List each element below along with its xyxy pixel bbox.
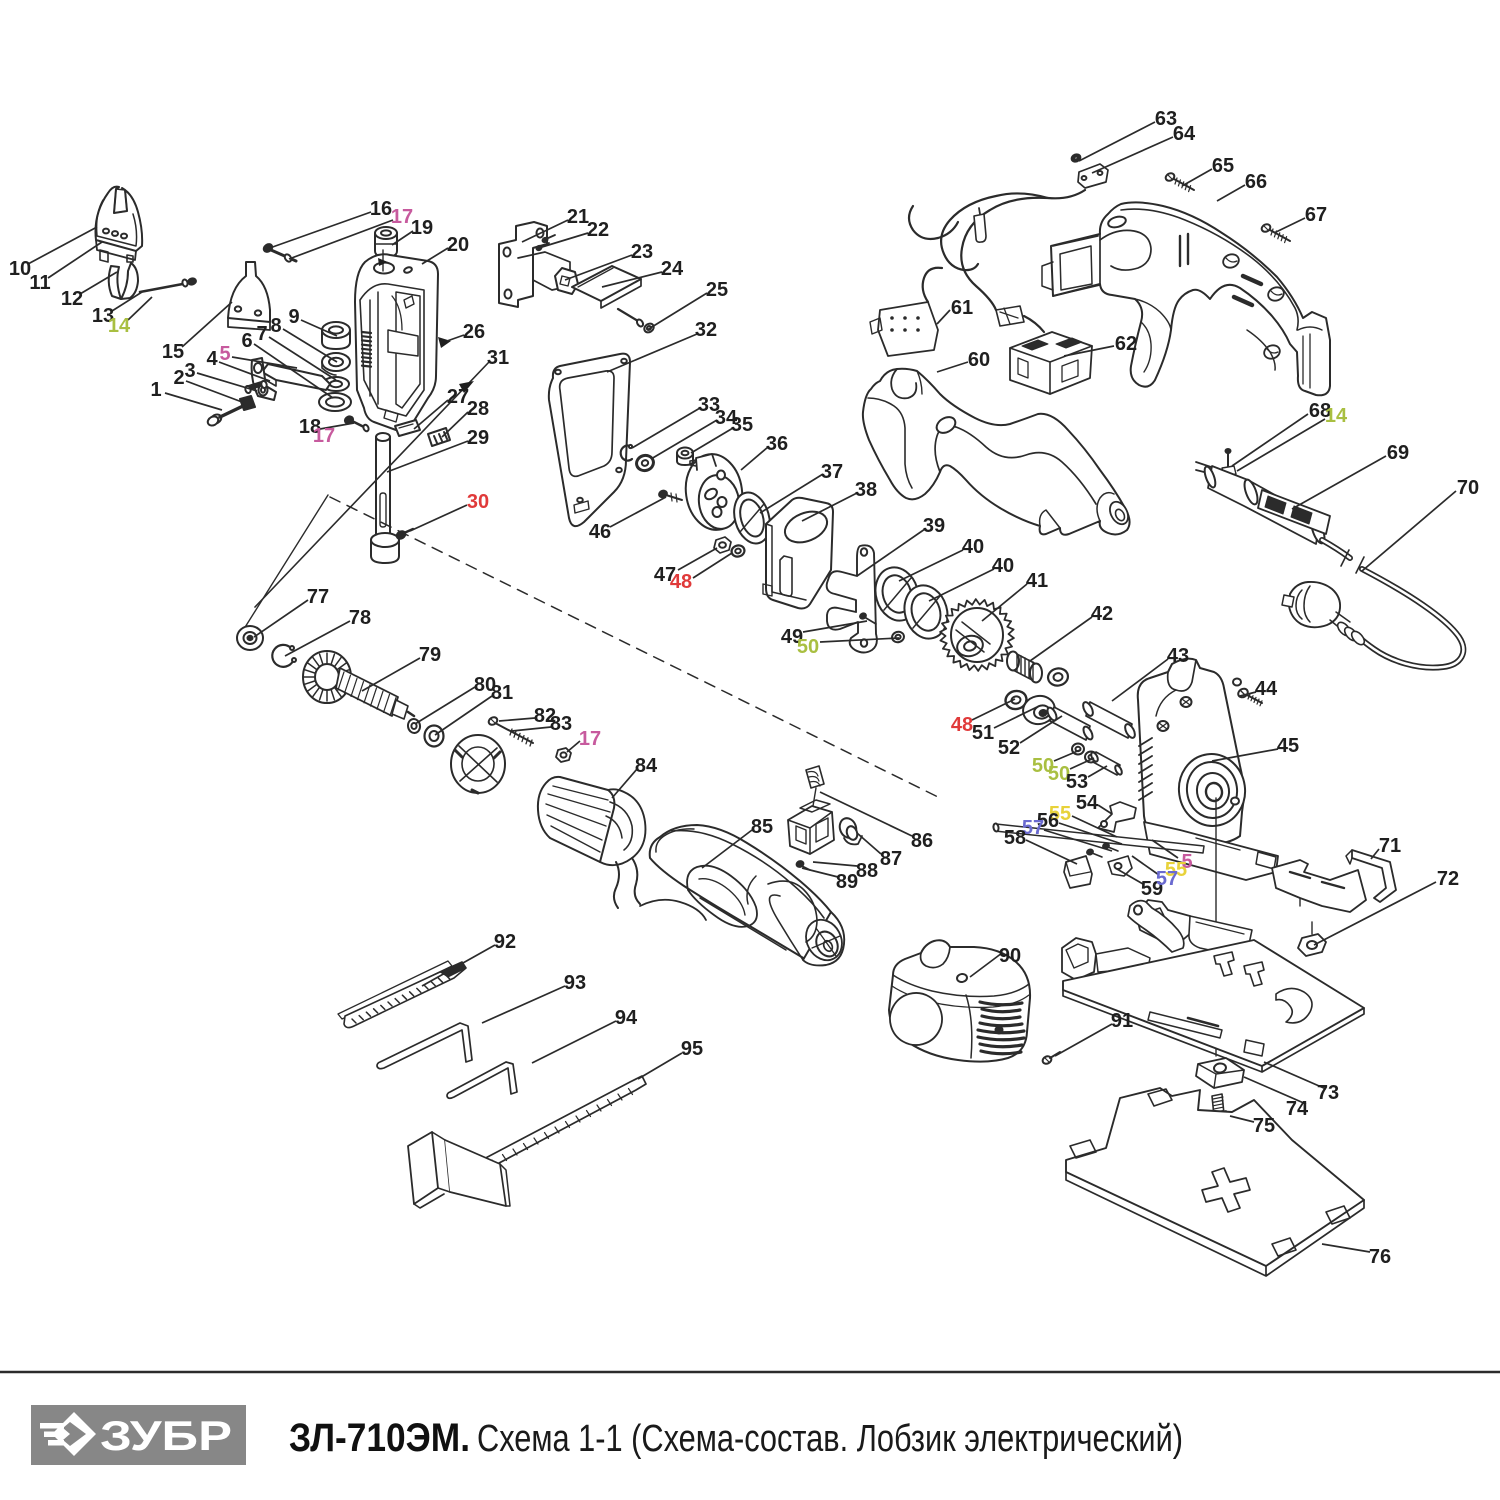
svg-text:79: 79 xyxy=(419,644,441,666)
svg-text:69: 69 xyxy=(1387,442,1409,464)
svg-text:36: 36 xyxy=(766,433,788,455)
svg-text:15: 15 xyxy=(162,341,184,363)
svg-text:66: 66 xyxy=(1245,171,1267,193)
svg-text:72: 72 xyxy=(1437,868,1459,890)
svg-text:40: 40 xyxy=(962,536,984,558)
svg-text:1: 1 xyxy=(150,379,161,401)
svg-text:89: 89 xyxy=(836,871,858,893)
svg-text:30: 30 xyxy=(467,491,489,513)
svg-text:71: 71 xyxy=(1379,835,1401,857)
svg-text:48: 48 xyxy=(951,714,973,736)
svg-text:90: 90 xyxy=(999,945,1021,967)
svg-text:8: 8 xyxy=(270,315,281,337)
svg-text:83: 83 xyxy=(550,713,572,735)
svg-text:88: 88 xyxy=(856,860,878,882)
svg-text:ЗЛ-710ЭМ.: ЗЛ-710ЭМ. xyxy=(289,1416,470,1460)
svg-text:42: 42 xyxy=(1091,603,1113,625)
svg-text:11: 11 xyxy=(29,272,50,294)
svg-text:51: 51 xyxy=(972,722,994,744)
svg-text:27: 27 xyxy=(447,386,469,408)
svg-text:43: 43 xyxy=(1167,645,1189,667)
svg-text:14: 14 xyxy=(1325,405,1348,427)
svg-text:40: 40 xyxy=(992,555,1014,577)
svg-text:19: 19 xyxy=(411,217,433,239)
svg-text:46: 46 xyxy=(589,521,611,543)
svg-text:86: 86 xyxy=(911,830,933,852)
svg-text:64: 64 xyxy=(1173,123,1196,145)
svg-text:9: 9 xyxy=(288,306,299,328)
svg-text:39: 39 xyxy=(923,515,945,537)
svg-text:38: 38 xyxy=(855,479,877,501)
svg-text:41: 41 xyxy=(1026,570,1048,592)
svg-text:4: 4 xyxy=(206,348,218,370)
svg-text:67: 67 xyxy=(1305,204,1327,226)
svg-text:24: 24 xyxy=(661,258,684,280)
svg-text:17: 17 xyxy=(313,425,335,447)
svg-text:29: 29 xyxy=(467,427,489,449)
svg-text:57: 57 xyxy=(1156,868,1178,890)
svg-text:53: 53 xyxy=(1066,771,1088,793)
svg-text:16: 16 xyxy=(370,198,392,220)
svg-text:5: 5 xyxy=(219,343,230,365)
svg-text:23: 23 xyxy=(631,241,653,263)
svg-text:10: 10 xyxy=(9,258,31,280)
svg-text:32: 32 xyxy=(695,319,717,341)
svg-text:78: 78 xyxy=(349,607,371,629)
svg-text:3: 3 xyxy=(184,360,195,382)
svg-text:62: 62 xyxy=(1115,333,1137,355)
svg-text:94: 94 xyxy=(615,1007,638,1029)
svg-text:95: 95 xyxy=(681,1038,703,1060)
svg-text:26: 26 xyxy=(463,321,485,343)
svg-text:84: 84 xyxy=(635,755,658,777)
svg-text:75: 75 xyxy=(1253,1115,1275,1137)
svg-text:74: 74 xyxy=(1286,1098,1309,1120)
svg-text:7: 7 xyxy=(256,323,267,345)
svg-text:Схема 1-1 (Схема-состав. Лобзи: Схема 1-1 (Схема-состав. Лобзик электрич… xyxy=(477,1418,1183,1460)
svg-text:52: 52 xyxy=(998,737,1020,759)
svg-text:73: 73 xyxy=(1317,1082,1339,1104)
svg-text:87: 87 xyxy=(880,848,902,870)
svg-text:70: 70 xyxy=(1457,477,1479,499)
svg-text:65: 65 xyxy=(1212,155,1234,177)
svg-text:17: 17 xyxy=(579,728,601,750)
svg-text:58: 58 xyxy=(1004,827,1026,849)
svg-text:17: 17 xyxy=(391,206,413,228)
svg-text:14: 14 xyxy=(108,315,131,337)
svg-text:48: 48 xyxy=(670,571,692,593)
svg-text:61: 61 xyxy=(951,297,973,319)
svg-text:77: 77 xyxy=(307,586,329,608)
svg-text:81: 81 xyxy=(491,682,513,704)
svg-text:35: 35 xyxy=(731,414,753,436)
svg-text:21: 21 xyxy=(567,206,589,228)
svg-text:2: 2 xyxy=(173,367,184,389)
svg-text:20: 20 xyxy=(447,234,469,256)
svg-text:91: 91 xyxy=(1111,1010,1133,1032)
svg-text:25: 25 xyxy=(706,279,728,301)
svg-text:92: 92 xyxy=(494,931,516,953)
svg-text:31: 31 xyxy=(487,347,509,369)
svg-text:93: 93 xyxy=(564,972,586,994)
svg-text:6: 6 xyxy=(241,330,252,352)
svg-text:22: 22 xyxy=(587,219,609,241)
svg-text:54: 54 xyxy=(1076,792,1099,814)
svg-text:76: 76 xyxy=(1369,1246,1391,1268)
svg-text:28: 28 xyxy=(467,398,489,420)
svg-text:12: 12 xyxy=(61,288,83,310)
svg-text:50: 50 xyxy=(797,636,819,658)
svg-text:44: 44 xyxy=(1255,678,1278,700)
svg-text:37: 37 xyxy=(821,461,843,483)
svg-text:85: 85 xyxy=(751,816,773,838)
svg-text:45: 45 xyxy=(1277,735,1299,757)
svg-text:ЗУБР: ЗУБР xyxy=(100,1412,232,1459)
svg-text:60: 60 xyxy=(968,349,990,371)
